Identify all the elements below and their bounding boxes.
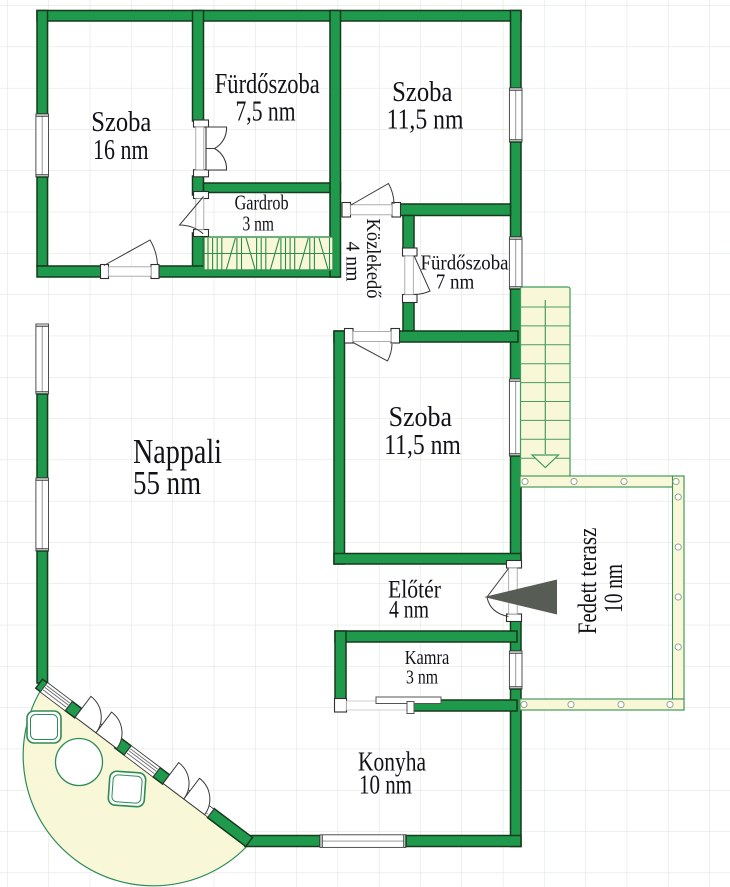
- svg-text:4 nm: 4 nm: [342, 242, 364, 282]
- svg-text:Fürdőszoba: Fürdőszoba: [215, 69, 320, 100]
- svg-text:Fedett terasz: Fedett terasz: [573, 528, 602, 635]
- svg-text:3 nm: 3 nm: [406, 667, 438, 689]
- svg-text:10 nm: 10 nm: [359, 770, 412, 800]
- svg-text:7 nm: 7 nm: [436, 269, 475, 293]
- svg-text:Közlekedő: Közlekedő: [362, 219, 384, 299]
- svg-text:11,5 nm: 11,5 nm: [384, 429, 461, 461]
- svg-text:4 nm: 4 nm: [389, 597, 429, 624]
- svg-text:55 nm: 55 nm: [133, 465, 201, 502]
- svg-text:3 nm: 3 nm: [242, 212, 274, 236]
- svg-text:10 nm: 10 nm: [599, 564, 628, 613]
- svg-text:16 nm: 16 nm: [93, 134, 149, 166]
- svg-text:11,5 nm: 11,5 nm: [387, 103, 464, 135]
- svg-text:7,5 nm: 7,5 nm: [236, 97, 296, 128]
